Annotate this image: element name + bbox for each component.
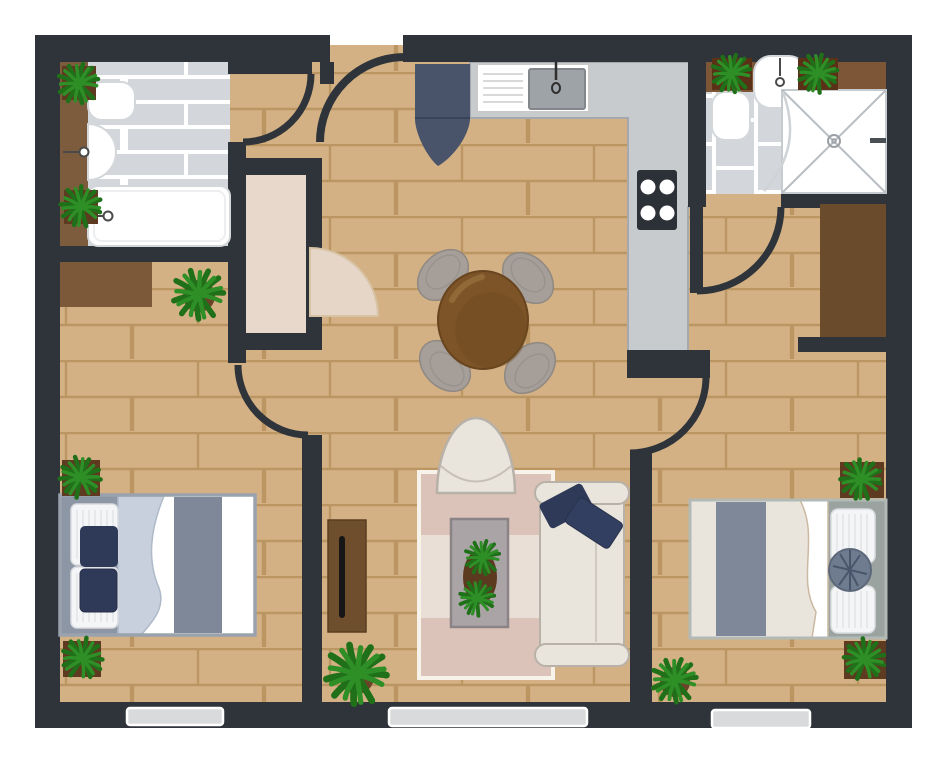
bed-runner	[716, 502, 766, 636]
shower-handle	[870, 138, 886, 143]
wall-bedroom-left-east	[302, 435, 322, 705]
dresser	[60, 262, 152, 307]
bathroom-right-door-leaf	[690, 205, 703, 293]
wall-left	[35, 35, 60, 728]
bed-right	[690, 500, 886, 638]
window	[712, 710, 810, 728]
wall-wardrobe-stub	[798, 337, 886, 352]
bed-runner	[174, 497, 222, 633]
bathtub-faucet-knob-icon	[104, 212, 113, 221]
floor-plan-canvas	[0, 0, 948, 768]
wall-bathroom-left-right	[228, 142, 246, 363]
potted-plant	[710, 52, 753, 95]
wall-top-right	[403, 35, 912, 62]
closet-interior	[245, 175, 306, 333]
sofa	[535, 482, 629, 666]
toilet	[712, 92, 750, 140]
floor-plan	[0, 0, 948, 768]
console-handle	[339, 536, 345, 618]
stove	[637, 170, 677, 230]
navy-cushion	[80, 526, 118, 567]
wall-bathroom-left-bottom	[35, 246, 246, 262]
wall-top-left	[35, 35, 330, 62]
burner-icon	[660, 206, 675, 221]
wall-bedroom-right-west	[630, 453, 652, 705]
bathroom-left-door-leaf	[228, 58, 312, 74]
navy-cushion	[80, 569, 117, 612]
wall-bathroom-right-bottom-left	[688, 192, 703, 207]
burner-icon	[660, 180, 675, 195]
console-table	[328, 520, 366, 632]
sink-faucet-knob-icon	[776, 78, 784, 86]
window	[127, 708, 223, 725]
shower	[764, 90, 886, 193]
wall-right	[886, 35, 912, 728]
potted-plant	[56, 61, 102, 107]
burner-icon	[641, 206, 656, 221]
wall-kitchen-stub	[627, 350, 710, 378]
table-shading	[455, 292, 527, 368]
wardrobe	[820, 204, 886, 337]
wall-kitchen-bathroom-divider	[688, 35, 706, 207]
coffee-table	[450, 519, 508, 627]
burner-icon	[641, 180, 656, 195]
window	[389, 708, 587, 726]
entry-door-jamb	[320, 62, 334, 84]
bed-left	[60, 495, 255, 635]
sink-faucet-knob-icon	[80, 148, 89, 157]
sofa-armrest	[535, 644, 629, 666]
